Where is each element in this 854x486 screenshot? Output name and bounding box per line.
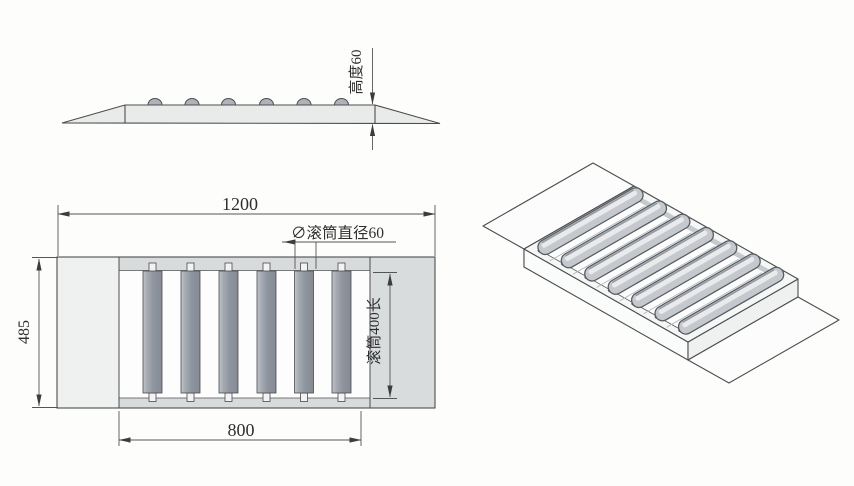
total-length-dim-label: 1200 <box>222 194 258 214</box>
plan-roller <box>143 263 162 402</box>
roller-diameter-label: ∅滚筒直径60 <box>291 224 384 242</box>
plan-roller <box>295 263 314 402</box>
roller-ramp-drawing: 高度60 <box>0 0 854 486</box>
plan-width-dimension <box>32 258 58 408</box>
plan-bottom-rail <box>119 398 370 408</box>
iso-view <box>483 163 839 383</box>
side-roller-bumps <box>148 99 349 106</box>
side-ramp-body <box>62 105 440 124</box>
plan-roller <box>181 263 200 402</box>
roller-span-dim-label: 800 <box>228 420 255 440</box>
plan-view: 1200 485 800 ∅滚筒直径60 滚筒400长 <box>16 194 435 446</box>
side-view: 高度60 <box>62 48 440 150</box>
height-dim-label: 高度60 <box>348 49 365 94</box>
width-dim-label: 485 <box>16 320 33 344</box>
roller-length-label: 滚筒400长 <box>366 297 383 365</box>
plan-roller <box>332 263 351 402</box>
plan-left-flap <box>57 257 119 408</box>
plan-roller <box>257 263 276 402</box>
plan-top-rail <box>119 257 370 271</box>
plan-roller <box>219 263 238 402</box>
technical-drawing-canvas: 高度60 <box>0 0 854 486</box>
